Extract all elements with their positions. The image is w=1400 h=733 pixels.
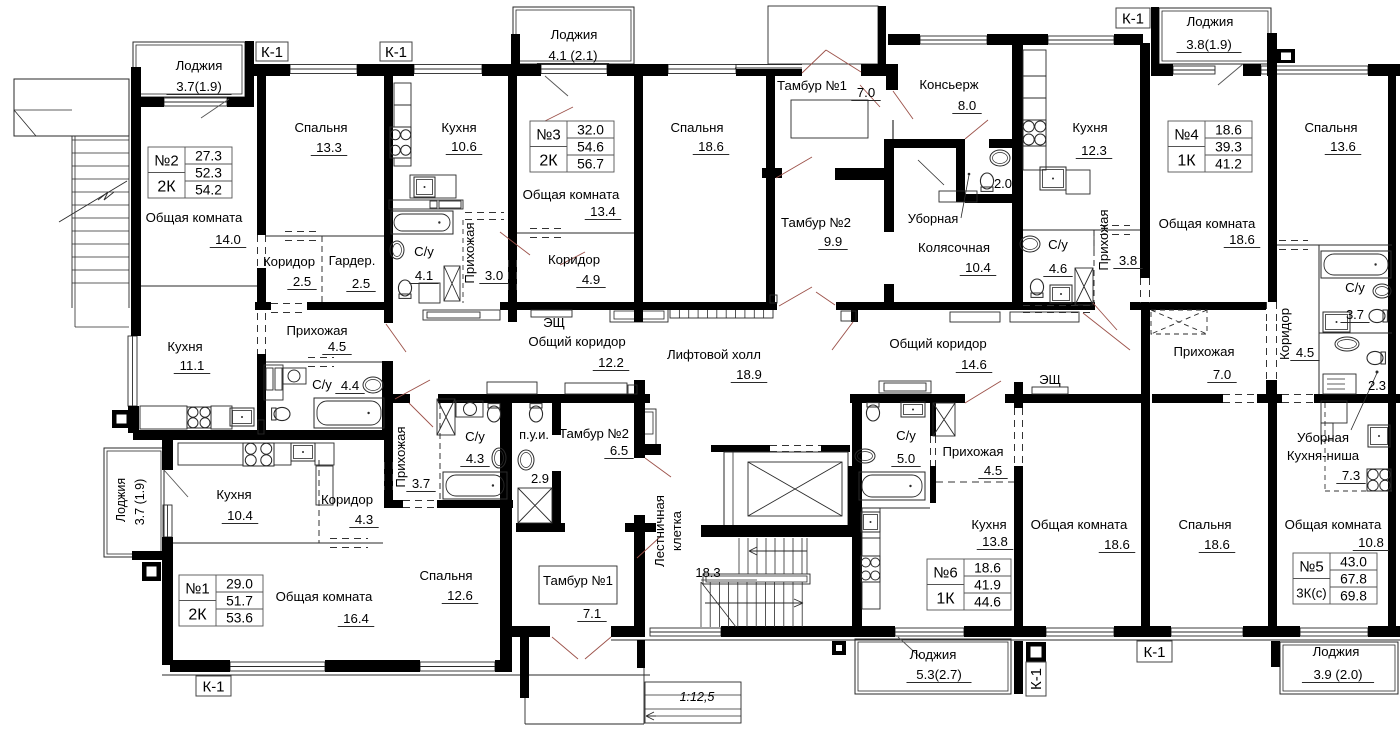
svg-text:2.9: 2.9 xyxy=(531,471,549,486)
svg-text:2.0: 2.0 xyxy=(994,176,1012,191)
svg-text:К-1: К-1 xyxy=(202,679,224,696)
svg-text:5.0: 5.0 xyxy=(897,451,915,466)
svg-text:С/у: С/у xyxy=(465,429,485,444)
svg-text:7.0: 7.0 xyxy=(857,85,875,100)
svg-text:К-1: К-1 xyxy=(1028,668,1045,690)
svg-text:3.7: 3.7 xyxy=(1346,307,1364,322)
svg-text:Прихожая: Прихожая xyxy=(942,444,1003,459)
svg-text:4.5: 4.5 xyxy=(984,463,1002,478)
svg-text:18.6: 18.6 xyxy=(698,139,724,154)
svg-text:Кухня: Кухня xyxy=(167,339,202,354)
svg-text:3.7 (1.9): 3.7 (1.9) xyxy=(133,479,147,526)
svg-text:11.1: 11.1 xyxy=(180,358,205,373)
svg-text:3.7(1.9): 3.7(1.9) xyxy=(176,79,221,94)
svg-text:Прихожая: Прихожая xyxy=(286,323,347,338)
svg-text:3.0: 3.0 xyxy=(485,268,503,283)
svg-text:10.8: 10.8 xyxy=(1358,535,1384,550)
svg-text:2К: 2К xyxy=(157,178,176,195)
svg-text:5.3(2.7): 5.3(2.7) xyxy=(916,667,961,682)
svg-text:41.9: 41.9 xyxy=(974,578,1001,593)
svg-text:Кухня: Кухня xyxy=(441,120,476,135)
svg-text:18.6: 18.6 xyxy=(1215,123,1242,138)
svg-text:51.7: 51.7 xyxy=(226,594,253,609)
svg-text:3.9 (2.0): 3.9 (2.0) xyxy=(1313,667,1362,682)
svg-text:2К: 2К xyxy=(188,606,207,623)
svg-text:3.8(1.9): 3.8(1.9) xyxy=(1186,37,1231,52)
svg-text:Общий коридор: Общий коридор xyxy=(889,336,986,351)
svg-text:6.5: 6.5 xyxy=(610,443,628,458)
svg-text:Тамбур №2: Тамбур №2 xyxy=(781,215,851,230)
svg-text:3.8: 3.8 xyxy=(1119,253,1137,268)
svg-text:18.9: 18.9 xyxy=(736,367,762,382)
svg-text:Лоджия: Лоджия xyxy=(1313,644,1360,659)
svg-text:№3: №3 xyxy=(536,126,560,143)
svg-text:2К: 2К xyxy=(539,152,558,169)
svg-text:18.6: 18.6 xyxy=(974,561,1001,576)
svg-text:69.8: 69.8 xyxy=(1340,589,1367,604)
svg-text:10.6: 10.6 xyxy=(451,139,477,154)
svg-text:39.3: 39.3 xyxy=(1215,140,1242,155)
svg-text:Лоджия: Лоджия xyxy=(1187,14,1234,29)
svg-text:Общая комната: Общая комната xyxy=(1159,216,1256,231)
svg-text:29.0: 29.0 xyxy=(226,577,253,592)
svg-text:№2: №2 xyxy=(154,152,178,169)
svg-text:Колясочная: Колясочная xyxy=(918,240,990,255)
svg-text:Кухня: Кухня xyxy=(971,517,1006,532)
svg-text:С/у: С/у xyxy=(896,428,916,443)
svg-text:Уборная: Уборная xyxy=(908,211,959,226)
svg-text:32.0: 32.0 xyxy=(577,123,604,138)
svg-text:Лоджия: Лоджия xyxy=(114,478,128,522)
svg-text:3К(с): 3К(с) xyxy=(1296,585,1326,600)
svg-text:2.5: 2.5 xyxy=(293,274,311,289)
svg-text:7.3: 7.3 xyxy=(1342,468,1360,483)
svg-text:Прихожая: Прихожая xyxy=(462,222,477,283)
svg-text:С/у: С/у xyxy=(1048,237,1068,252)
svg-text:№4: №4 xyxy=(1174,126,1198,143)
svg-text:4.9: 4.9 xyxy=(582,272,600,287)
svg-text:Уборная: Уборная xyxy=(1297,430,1349,445)
svg-text:12.3: 12.3 xyxy=(1081,143,1107,158)
svg-text:9.9: 9.9 xyxy=(824,234,842,249)
svg-text:Тамбур №2: Тамбур №2 xyxy=(559,426,629,441)
svg-text:С/у: С/у xyxy=(414,244,434,259)
svg-text:18.6: 18.6 xyxy=(1229,232,1255,247)
svg-text:Коридор: Коридор xyxy=(321,492,373,507)
svg-text:7.1: 7.1 xyxy=(583,606,601,621)
svg-text:1К: 1К xyxy=(1177,152,1196,169)
svg-text:44.6: 44.6 xyxy=(974,595,1001,610)
svg-text:С/у: С/у xyxy=(1345,280,1365,295)
svg-text:К-1: К-1 xyxy=(261,44,283,61)
svg-text:14.6: 14.6 xyxy=(961,357,987,372)
svg-text:Лоджия: Лоджия xyxy=(176,58,223,73)
svg-text:Общая комната: Общая комната xyxy=(146,210,243,225)
svg-text:Общая комната: Общая комната xyxy=(1285,517,1382,532)
svg-text:№6: №6 xyxy=(933,564,957,581)
svg-text:№1: №1 xyxy=(185,580,209,597)
svg-text:Гардер.: Гардер. xyxy=(329,253,376,268)
svg-text:3.7: 3.7 xyxy=(412,476,430,491)
svg-text:7.0: 7.0 xyxy=(1213,367,1231,382)
svg-text:13.6: 13.6 xyxy=(1330,139,1356,154)
svg-text:4.3: 4.3 xyxy=(355,512,373,527)
svg-text:Общая комната: Общая комната xyxy=(523,187,620,202)
svg-text:Спальня: Спальня xyxy=(1305,120,1358,135)
svg-text:Спальня: Спальня xyxy=(420,568,473,583)
svg-text:13.8: 13.8 xyxy=(982,534,1008,549)
svg-text:Лоджия: Лоджия xyxy=(551,27,598,42)
svg-text:8.0: 8.0 xyxy=(958,98,976,113)
svg-text:Лестничная: Лестничная xyxy=(652,495,667,567)
svg-text:18.3: 18.3 xyxy=(695,565,720,580)
svg-text:13.3: 13.3 xyxy=(316,140,342,155)
svg-text:53.6: 53.6 xyxy=(226,611,253,626)
svg-text:Кухня: Кухня xyxy=(216,487,251,502)
svg-text:Коридор: Коридор xyxy=(263,254,315,269)
svg-text:43.0: 43.0 xyxy=(1340,555,1367,570)
svg-text:Тамбур №1: Тамбур №1 xyxy=(543,573,613,588)
svg-text:52.3: 52.3 xyxy=(195,166,222,181)
svg-text:4.5: 4.5 xyxy=(1296,345,1314,360)
svg-text:4.5: 4.5 xyxy=(328,339,346,354)
svg-text:14.0: 14.0 xyxy=(215,232,241,247)
svg-text:10.4: 10.4 xyxy=(965,260,991,275)
svg-text:18.6: 18.6 xyxy=(1104,537,1130,552)
svg-text:56.7: 56.7 xyxy=(577,157,604,172)
svg-text:10.4: 10.4 xyxy=(227,508,253,523)
svg-text:№5: №5 xyxy=(1299,558,1323,575)
svg-text:Лоджия: Лоджия xyxy=(910,647,957,662)
svg-text:Тамбур №1: Тамбур №1 xyxy=(777,78,847,93)
svg-text:2.3: 2.3 xyxy=(1368,378,1386,393)
svg-text:Коридор: Коридор xyxy=(1277,308,1292,360)
svg-text:41.2: 41.2 xyxy=(1215,157,1242,172)
svg-text:4.3: 4.3 xyxy=(466,451,484,466)
svg-text:12.6: 12.6 xyxy=(447,588,473,603)
svg-text:2.5: 2.5 xyxy=(352,276,370,291)
svg-text:Лифтовой холл: Лифтовой холл xyxy=(667,347,761,362)
svg-text:Прихожая: Прихожая xyxy=(1173,344,1234,359)
svg-text:Прихожая: Прихожая xyxy=(1096,209,1111,270)
svg-text:К-1: К-1 xyxy=(1143,644,1165,661)
svg-text:4.4: 4.4 xyxy=(341,378,359,393)
svg-text:16.4: 16.4 xyxy=(343,611,369,626)
svg-text:27.3: 27.3 xyxy=(195,149,222,164)
svg-text:67.8: 67.8 xyxy=(1340,572,1367,587)
svg-text:Общий коридор: Общий коридор xyxy=(528,334,625,349)
svg-text:клетка: клетка xyxy=(669,510,684,551)
svg-text:4.6: 4.6 xyxy=(1049,261,1067,276)
svg-text:54.2: 54.2 xyxy=(195,183,222,198)
svg-text:Спальня: Спальня xyxy=(1179,517,1232,532)
svg-text:Общая комната: Общая комната xyxy=(276,589,373,604)
svg-text:К-1: К-1 xyxy=(1122,11,1144,28)
svg-text:К-1: К-1 xyxy=(385,44,407,61)
svg-text:ЭЩ: ЭЩ xyxy=(1039,372,1061,387)
svg-text:54.6: 54.6 xyxy=(577,140,604,155)
svg-text:ЭЩ: ЭЩ xyxy=(543,315,565,330)
svg-text:Консьерж: Консьерж xyxy=(919,77,978,92)
svg-text:Общая комната: Общая комната xyxy=(1031,517,1128,532)
svg-text:Кухня: Кухня xyxy=(1072,120,1107,135)
svg-text:12.2: 12.2 xyxy=(598,355,624,370)
svg-text:18.6: 18.6 xyxy=(1204,537,1230,552)
svg-text:1:12,5: 1:12,5 xyxy=(680,690,715,704)
svg-text:п.у.и.: п.у.и. xyxy=(519,427,549,442)
svg-text:Коридор: Коридор xyxy=(548,252,600,267)
svg-text:Прихожая: Прихожая xyxy=(393,426,408,487)
svg-text:Кухня-ниша: Кухня-ниша xyxy=(1287,448,1360,463)
svg-text:4.1 (2.1): 4.1 (2.1) xyxy=(548,48,597,63)
svg-text:С/у: С/у xyxy=(312,377,332,392)
svg-text:4.1: 4.1 xyxy=(415,268,433,283)
svg-text:13.4: 13.4 xyxy=(590,204,616,219)
svg-text:Спальня: Спальня xyxy=(295,120,348,135)
svg-text:1К: 1К xyxy=(936,590,955,607)
svg-text:Спальня: Спальня xyxy=(671,120,724,135)
